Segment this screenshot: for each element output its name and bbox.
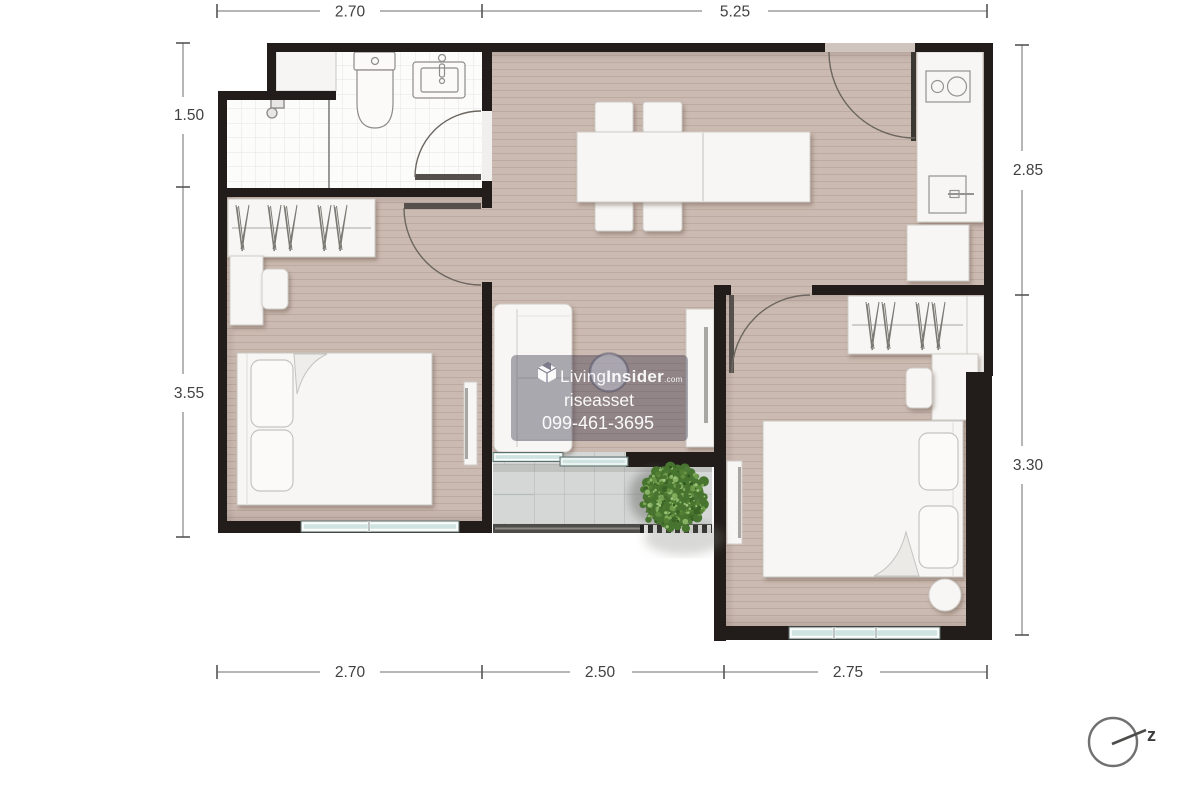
svg-text:3.30: 3.30 <box>1013 457 1044 474</box>
svg-text:2.70: 2.70 <box>335 664 366 681</box>
svg-text:2.85: 2.85 <box>1013 162 1043 179</box>
svg-text:5.25: 5.25 <box>720 4 750 21</box>
svg-text:2.75: 2.75 <box>833 664 863 681</box>
svg-text:2.70: 2.70 <box>335 4 366 21</box>
svg-text:099-461-3695: 099-461-3695 <box>542 413 654 433</box>
svg-text:3.55: 3.55 <box>174 385 204 402</box>
svg-text:2.50: 2.50 <box>585 664 616 681</box>
svg-text:z: z <box>1147 725 1156 745</box>
svg-text:1.50: 1.50 <box>174 107 205 124</box>
svg-text:riseasset: riseasset <box>564 390 634 410</box>
